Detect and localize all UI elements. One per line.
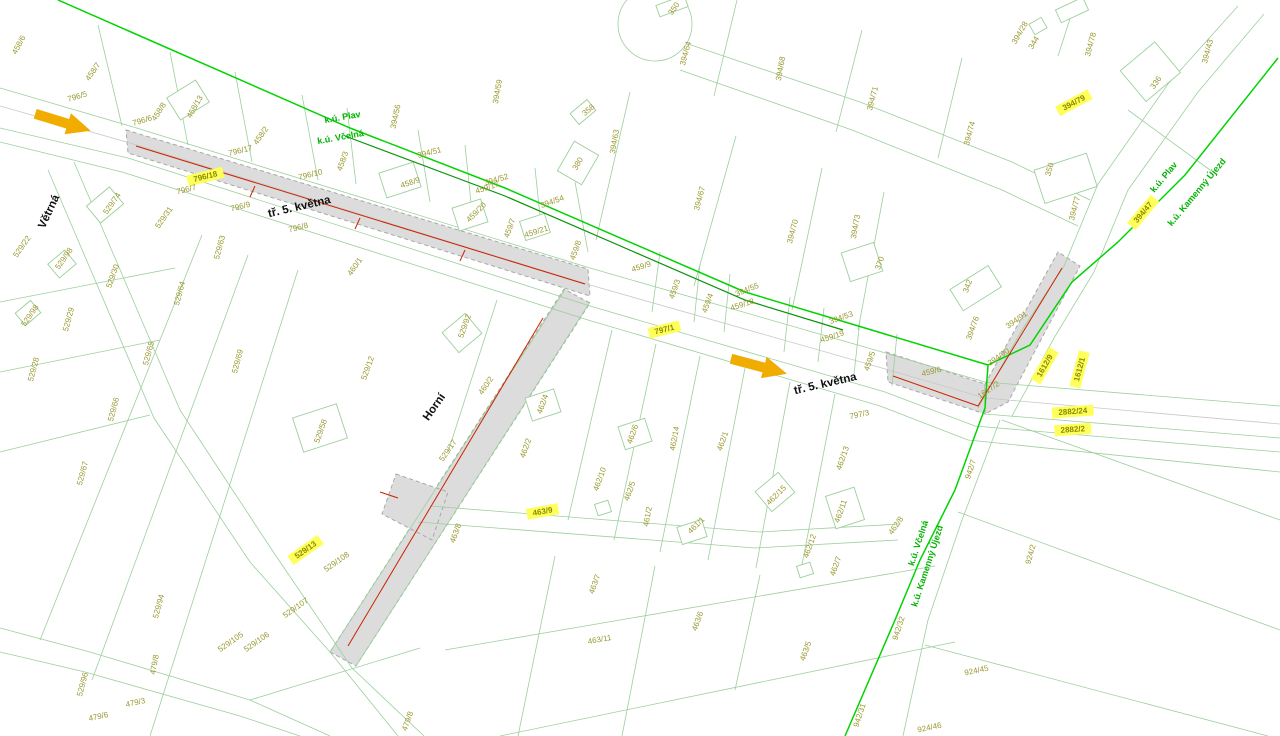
map-svg: 458/6458/7796/5458/8458/13796/6458/2796/… bbox=[0, 0, 1280, 736]
parcel-label: 463/7 bbox=[587, 573, 602, 595]
parcel-label: 462/13 bbox=[834, 445, 851, 472]
parcel-label: 796/5 bbox=[66, 89, 88, 104]
parcel-label: 796/17 bbox=[227, 143, 253, 158]
parcel-label: 924/2 bbox=[1024, 543, 1038, 565]
parcel-label: 479/8 bbox=[400, 710, 415, 732]
street-name-label: Větrná bbox=[36, 192, 62, 230]
parcel-label: 796/8 bbox=[288, 221, 310, 235]
parcel-label: 479/8 bbox=[148, 653, 160, 675]
parcel-label: 796/7 bbox=[176, 183, 198, 197]
parcel-label: 529/28 bbox=[26, 356, 41, 382]
parcel-label: 459/7 bbox=[502, 217, 517, 239]
parcel-label: 924/46 bbox=[917, 720, 943, 734]
parcel-label: 529/106 bbox=[242, 630, 271, 654]
parcel-label: 458/2 bbox=[252, 124, 271, 146]
cadastral-map-page: 458/6458/7796/5458/8458/13796/6458/2796/… bbox=[0, 0, 1280, 736]
parcel-label: 463/8 bbox=[448, 522, 463, 544]
parcel-label: 529/96 bbox=[75, 671, 90, 697]
parcel-label: 796/10 bbox=[297, 167, 323, 182]
site-access-arrow-icon bbox=[728, 348, 790, 384]
parcel-label: 458/3 bbox=[335, 150, 350, 172]
parcel-label: 529/64 bbox=[172, 280, 187, 306]
parcel-label: 529/108 bbox=[322, 550, 351, 574]
parcel-label: 394/67 bbox=[692, 185, 707, 211]
parcel-label: 462/1 bbox=[715, 430, 730, 452]
parcel-label: 462/10 bbox=[591, 466, 608, 493]
parcel-label: 458/8 bbox=[150, 100, 169, 122]
cadastre-area-label: k.ú. Plav bbox=[324, 109, 362, 125]
parcel-label: 344 bbox=[1027, 34, 1042, 51]
parcel-label: 529/30 bbox=[104, 263, 121, 290]
parcel-label: 394/74 bbox=[962, 120, 977, 146]
parcel-label: 394/68 bbox=[774, 55, 787, 81]
parcel-label: 394/64 bbox=[678, 40, 693, 66]
parcel-label: 458/6 bbox=[10, 33, 28, 55]
parcel-label: 459/8 bbox=[568, 239, 583, 261]
parcel-label: 394/78 bbox=[1083, 31, 1098, 57]
highlighted-parcel-label: 394/47 bbox=[1132, 200, 1155, 225]
parcel-label: 529/107 bbox=[281, 596, 310, 620]
parcel-label: 479/6 bbox=[88, 710, 110, 723]
parcel-label: 796/6 bbox=[131, 113, 153, 128]
parcel-label: 394/43 bbox=[1200, 38, 1215, 64]
parcel-label: 462/14 bbox=[668, 425, 681, 451]
parcel-label: 529/65 bbox=[141, 340, 156, 366]
parcel-label: 394/70 bbox=[785, 218, 800, 244]
parcel-label: 459/9 bbox=[630, 259, 652, 274]
parcel-label: 394/28 bbox=[1010, 19, 1030, 45]
parcel-label: 529/31 bbox=[153, 205, 175, 231]
parcel-label: 529/105 bbox=[216, 630, 245, 654]
parcel-label: 458/7 bbox=[84, 60, 103, 82]
parcel-label: 394/51 bbox=[416, 145, 442, 160]
parcel-label: 463/11 bbox=[587, 633, 613, 646]
parcel-label: 459/4 bbox=[700, 292, 715, 314]
parcel-label: 529/63 bbox=[212, 234, 227, 260]
parcel-label: 394/54 bbox=[539, 193, 566, 210]
parcel-label: 529/66 bbox=[106, 396, 121, 422]
parcel-label: 942/32 bbox=[891, 615, 907, 642]
parcel-label: 463/5 bbox=[798, 640, 813, 662]
parcel-label: 479/3 bbox=[125, 696, 147, 709]
parcel-label: 394/59 bbox=[491, 78, 504, 104]
street-name-label: Horní bbox=[421, 391, 449, 423]
parcel-label: 394/76 bbox=[964, 315, 981, 342]
parcel-label: 462/12 bbox=[801, 533, 818, 560]
parcel-label: 797/3 bbox=[849, 408, 871, 421]
parcel-label: 459/18 bbox=[729, 296, 756, 312]
parcel-label: 529/22 bbox=[11, 234, 33, 260]
parcel-label: 462/7 bbox=[828, 555, 843, 577]
parcel-label: 529/67 bbox=[75, 460, 90, 486]
parcel-label: 459/19 bbox=[819, 328, 846, 344]
site-access-arrow-icon bbox=[32, 103, 94, 141]
parcel-label: 942/31 bbox=[852, 702, 868, 729]
parcel-label: 459/5 bbox=[862, 350, 877, 372]
parcel-label: 460/2 bbox=[477, 374, 496, 396]
highlighted-parcel-label: 394/79 bbox=[1061, 93, 1087, 113]
parcel-label: 529/29 bbox=[61, 306, 76, 332]
highlighted-parcel-label: 2882/2 bbox=[1060, 424, 1086, 435]
parcel-label: 529/69 bbox=[230, 348, 245, 374]
parcel-label: 394/71 bbox=[865, 85, 880, 111]
cadastre-area-label: k.ú. Včelná bbox=[316, 128, 365, 146]
parcel-label: 463/6 bbox=[690, 610, 705, 632]
parcel-label: 394/56 bbox=[389, 103, 403, 129]
parcel-label: 394/77 bbox=[1067, 195, 1082, 221]
parcel-label: 460/1 bbox=[346, 255, 365, 277]
parcel-label: 529/12 bbox=[359, 355, 376, 382]
parcel-label: 394/73 bbox=[849, 213, 862, 239]
cadastral-boundaries bbox=[58, 0, 1278, 736]
parcel-label: 394/63 bbox=[608, 128, 621, 154]
parcel-label: 462/2 bbox=[518, 437, 533, 459]
parcel-label: 796/9 bbox=[230, 200, 252, 214]
parcel-label: 459/3 bbox=[667, 278, 682, 300]
parcel-label: 461/2 bbox=[641, 505, 653, 527]
cadastre-area-label: k.ú. Plav bbox=[1148, 160, 1179, 194]
parcel-labels: 458/6458/7796/5458/8458/13796/6458/2796/… bbox=[10, 0, 1215, 734]
parcel-label: 924/45 bbox=[964, 663, 990, 677]
parcel-label: 529/94 bbox=[151, 593, 166, 619]
parcel-label: 462/5 bbox=[622, 480, 637, 502]
parcel-label: 462/8 bbox=[887, 514, 906, 536]
